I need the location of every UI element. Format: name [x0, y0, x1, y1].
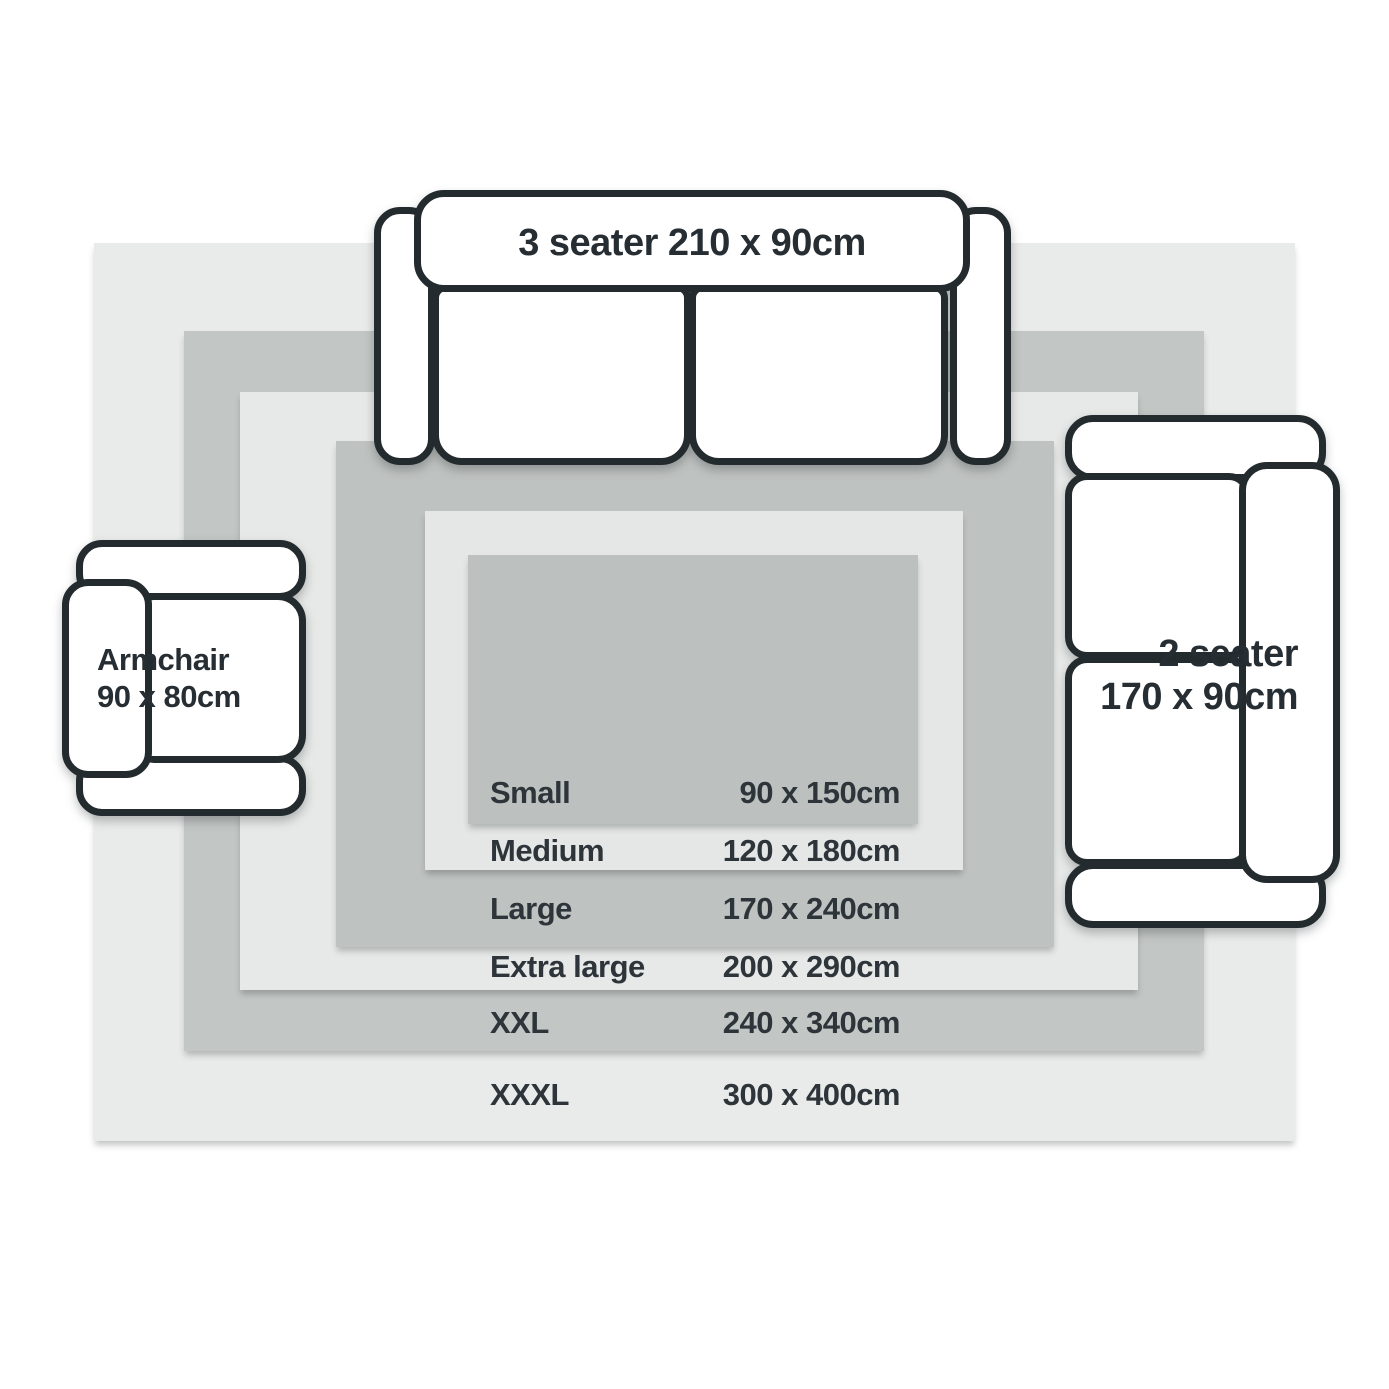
size-row-extra-large: Extra large 200 x 290cm	[490, 947, 900, 987]
size-label: Large	[490, 891, 572, 927]
size-label: Small	[490, 775, 570, 811]
size-value: 240 x 340cm	[723, 1005, 900, 1041]
size-value: 170 x 240cm	[723, 891, 900, 927]
size-value: 200 x 290cm	[723, 949, 900, 985]
size-label: Extra large	[490, 949, 645, 985]
size-value: 120 x 180cm	[723, 833, 900, 869]
rug-size-guide-diagram: 3 seater 210 x 90cm 2 seater 170 x 90cm …	[0, 0, 1389, 1389]
size-label: Medium	[490, 833, 604, 869]
size-value: 90 x 150cm	[740, 775, 900, 811]
size-label: XXL	[490, 1005, 549, 1041]
size-value: 300 x 400cm	[723, 1077, 900, 1113]
size-row-xxxl: XXXL 300 x 400cm	[490, 1075, 900, 1115]
size-label: XXXL	[490, 1077, 569, 1113]
size-row-medium: Medium 120 x 180cm	[490, 831, 900, 871]
size-row-small: Small 90 x 150cm	[490, 773, 900, 813]
size-row-xxl: XXL 240 x 340cm	[490, 1003, 900, 1043]
size-row-large: Large 170 x 240cm	[490, 889, 900, 929]
